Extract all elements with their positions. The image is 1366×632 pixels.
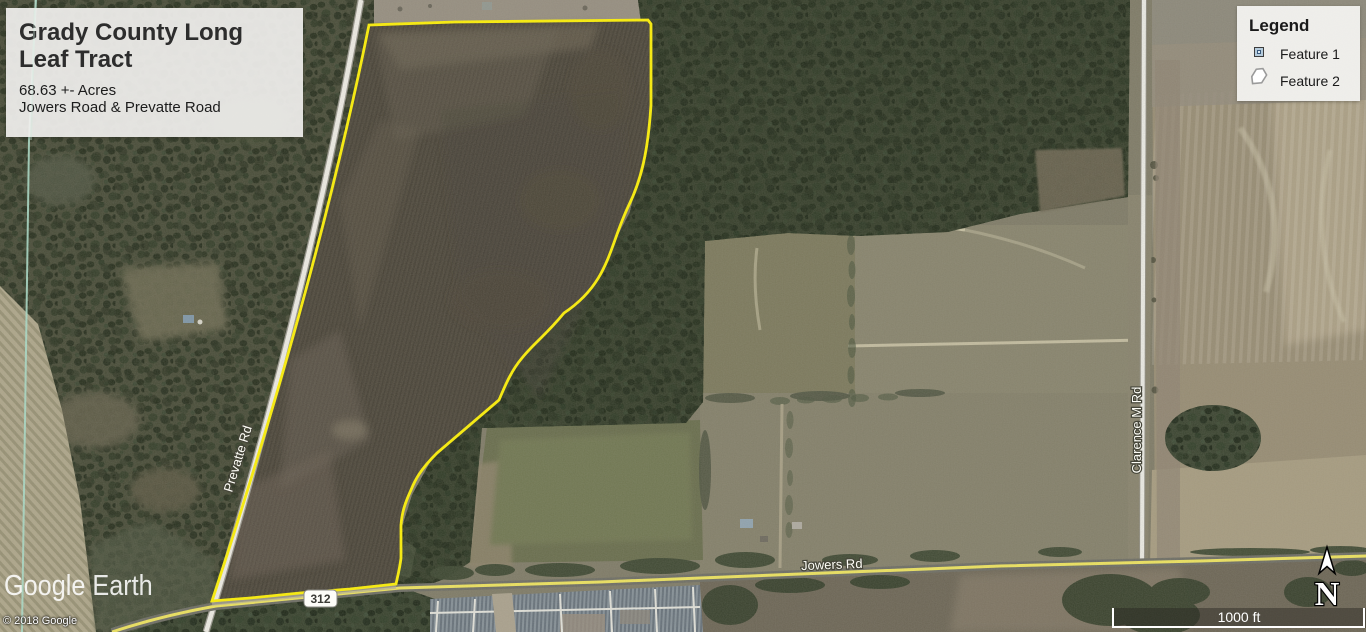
svg-text:Jowers Rd: Jowers Rd [801,556,863,573]
svg-text:312: 312 [310,592,330,606]
svg-text:Clarence M Rd: Clarence M Rd [1129,387,1144,474]
svg-text:N: N [1315,576,1340,612]
